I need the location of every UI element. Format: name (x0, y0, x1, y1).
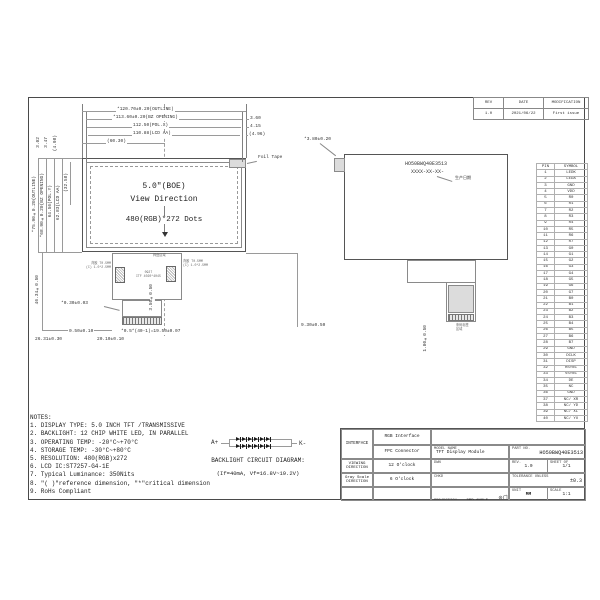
interface-label: INTERFACE (346, 442, 369, 447)
fpc-tail (122, 300, 162, 317)
dim-topleft-3: (4.98) (54, 134, 59, 152)
dimension-line (46, 158, 47, 252)
note-line: 2. BACKLIGHT: 12 CHIP WHITE LED, IN PARA… (30, 430, 265, 438)
view-direction-arrow-icon (162, 232, 168, 237)
resolution-label: 480(RGB)*272 Dots (124, 216, 205, 224)
dim-right-1: 3.60 (249, 117, 262, 122)
gray-scale-label-cell: Gray Scale DIRECTION (341, 473, 373, 487)
interface-value2-cell: FPC Connector (373, 445, 431, 459)
led-icon (254, 444, 258, 448)
dim-label-height: 1.00±0.50 (424, 324, 429, 353)
dwn-cell: DWN (431, 459, 509, 473)
rev-header: REV (474, 98, 504, 109)
fpc-gold-fingers (122, 317, 162, 325)
note-line: 1. DISPLAY TYPE: 5.0 INCH TFT /TRANSMISS… (30, 422, 265, 430)
center-note: 0927 ITF 4020*4045 (136, 271, 161, 279)
pad-area-note: 焊盘区域 (153, 254, 166, 258)
title-block-empty-cell (373, 487, 431, 501)
extension-line (246, 253, 297, 254)
dimension-line (62, 158, 63, 252)
viewing-direction-value-cell: 12 O'clock (373, 459, 431, 473)
extension-line (246, 104, 247, 158)
right-pad-note: 背胶 T0.5MM (C) 1.0*2.5MM (183, 260, 208, 268)
right-pad (166, 266, 176, 282)
dimension-line (297, 253, 298, 327)
dimension-line (42, 252, 43, 330)
extension-line (242, 112, 243, 162)
rev-value: 1.0 (474, 109, 504, 120)
dimension-line (70, 162, 71, 205)
barcode-label-note: 条码标签 区域 (456, 324, 469, 332)
dimension-line (54, 158, 55, 252)
led-icon (248, 437, 252, 441)
led-icon (248, 444, 252, 448)
chkd-label: CHKD (432, 474, 508, 479)
left-pad (115, 267, 125, 283)
rev-cell: REV. 1.0 (510, 460, 547, 472)
led-row (236, 444, 270, 448)
dim-aa-width: 110.88(LCD AA) (132, 132, 172, 137)
gray-scale-value-cell: 6 O'clock (373, 473, 431, 487)
note-line: 9. RoHs Compliant (30, 488, 265, 496)
dim-pol-height: 64.56(POL.Y) (49, 184, 54, 218)
dim-center-offset: (60.30) (106, 140, 127, 145)
barcode-label-note-line2: 区域 (456, 328, 469, 332)
note-line: 4. STORAGE TEMP: -30°C~+80°C (30, 447, 265, 455)
chkd-cell: CHKD (431, 473, 509, 487)
notes-title: NOTES: (30, 414, 265, 422)
dim-offset-2: 20.10±0.10 (96, 338, 125, 343)
led-icon (236, 437, 240, 441)
revision-row: 1.0 2021/06/22 First issue (474, 109, 589, 120)
led-icon (260, 444, 264, 448)
pin-table-body: 1LEDK2LEDA3GND4VDD5R06R17R28R39R410R511R… (537, 170, 588, 422)
part-no-cell: PART NO. HO50BWQ40E3513 (509, 445, 586, 459)
revision-header-row: REV DATE MODIFICATION (474, 98, 589, 109)
rev-sheet-cell: REV. 1.0 SHEET OF 1/1 (509, 459, 586, 473)
third-angle-projection-icon (498, 494, 508, 501)
rev-value: 1.0 (510, 465, 547, 470)
dim-pin-pitch: *0.5*(40-1)=19.50±0.07 (120, 330, 181, 335)
led-icon (266, 437, 270, 441)
revision-table: REV DATE MODIFICATION 1.0 2021/06/22 Fir… (473, 97, 589, 120)
interface-value-2: FPC Connector (384, 450, 419, 455)
dim-outline-height: *75.90±0.20(OUTLINE) (33, 175, 38, 233)
title-block-empty-cell (431, 429, 586, 445)
led-icon (242, 444, 246, 448)
interface-value1-cell: RGB Interface (373, 429, 431, 445)
extension-line (38, 252, 82, 253)
projection-label: PROJECTION (432, 498, 457, 501)
projection-cell: PROJECTION 3RD ANGLE (431, 487, 509, 501)
foil-tape-rect (229, 159, 246, 168)
back-part-number: HO50BWQ40E3513 (404, 162, 448, 168)
gray-scale-value: 6 O'clock (390, 478, 414, 483)
back-date-code: XXXX-XX-XX- (410, 170, 445, 176)
extension-line (82, 104, 83, 158)
title-block: INTERFACE RGB Interface FPC Connector MO… (340, 428, 585, 500)
production-date-label: 生产日期 (454, 177, 472, 181)
dimension-line (38, 158, 39, 252)
dim-outline-width: *120.70±0.20(OUTLINE) (116, 108, 175, 113)
dim-offset-1: 26.31±0.30 (34, 338, 63, 343)
view-direction-label: View Direction (130, 195, 197, 204)
dim-topleft-2: 3.47 (45, 136, 50, 149)
back-fpc-wide (407, 260, 476, 283)
dim-tail-height: 3.50±0.50 (150, 283, 155, 312)
viewing-direction-label-cell: VIEWING DIRECTION (341, 459, 373, 473)
led-row (236, 437, 270, 441)
dim-tab: *3.80±0.20 (303, 138, 332, 143)
modification-value: First issue (544, 109, 589, 120)
interface-label-cell: INTERFACE (341, 429, 373, 459)
dim-topleft-1: 3.02 (37, 136, 42, 149)
back-tape-tab (334, 158, 345, 172)
anode-label: A+ (210, 440, 219, 447)
viewing-direction-label-2: DIRECTION (346, 466, 368, 470)
unit-cell: UNIT MM (510, 488, 547, 500)
dim-center-offset-v: (32.58) (65, 172, 70, 193)
notes-block: NOTES: 1. DISPLAY TYPE: 5.0 INCH TFT /TR… (30, 414, 265, 496)
tolerance-value: ±0.3 (570, 479, 585, 485)
led-icon (260, 437, 264, 441)
right-pad-note-line2: (C) 1.0*2.5MM (183, 264, 208, 268)
backlight-diagram-title: BACKLIGHT CIRCUIT DIAGRAM: (211, 457, 305, 464)
left-pad-note-line2: (C) 1.0*2.5MM (86, 266, 111, 270)
tolerance-cell: TOLERANCE UNLESS SPECIFIED ±0.3 (509, 473, 586, 487)
backlight-spec: (If=40mA, Vf=16.8V~19.2V) (217, 470, 300, 477)
note-line: 8. "( )"reference dimension, "*"critical… (30, 480, 265, 488)
dim-fpc-thickness: *0.30±0.03 (60, 302, 89, 307)
modification-header: MODIFICATION (544, 98, 589, 109)
scale-value: 1:1 (548, 493, 585, 498)
back-gold-fingers (448, 314, 474, 321)
back-barcode-label (448, 285, 474, 313)
cathode-label: K- (298, 441, 307, 448)
dim-fpc-length: 46.34±0.50 (36, 274, 41, 305)
dim-right-3: (4.96) (248, 133, 266, 138)
extension-line (38, 158, 82, 159)
dim-bz-opening-height: *68.90±0.20(BZ OPENING) (41, 172, 46, 238)
dim-pol-width: 112.50(POL.X) (132, 124, 169, 129)
dim-stiffener: 0.50±0.10 (68, 330, 94, 335)
unit-scale-cell: UNIT MM SCALE 1:1 (509, 487, 586, 501)
title-block-empty-cell (341, 487, 373, 501)
dim-aa-height: 62.83(LCD AA) (57, 184, 62, 221)
led-icon (236, 444, 240, 448)
part-no-value: HO50BWQ40E3513 (510, 451, 585, 457)
foil-tape-callout: Foil Tape (257, 156, 283, 161)
model-name-cell: MODEL NAME TFT Display Module (431, 445, 509, 459)
led-icon (242, 437, 246, 441)
sheet-value: 1/1 (548, 465, 585, 470)
dim-gap: 9.30±0.50 (300, 324, 326, 329)
unit-value: MM (510, 493, 547, 498)
drawing-sheet: REV DATE MODIFICATION 1.0 2021/06/22 Fir… (0, 0, 600, 600)
dim-right-2: 4.15 (249, 125, 262, 130)
pin-row: 40NC/ YU (537, 415, 588, 421)
gray-scale-label-2: DIRECTION (346, 480, 368, 484)
date-header: DATE (504, 98, 544, 109)
dim-bz-opening-width: *113.60±0.20(BZ OPENING) (112, 116, 179, 121)
left-pad-note: 背胶 T0.5MM (C) 1.0*2.5MM (86, 262, 111, 270)
center-note-line2: ITF 4020*4045 (136, 275, 161, 279)
sheet-cell: SHEET OF 1/1 (547, 460, 585, 472)
led-icon (266, 444, 270, 448)
dwn-label: DWN (432, 460, 508, 465)
scale-cell: SCALE 1:1 (547, 488, 585, 500)
interface-value-1: RGB Interface (384, 435, 419, 440)
model-name-value: TFT Display Module (432, 451, 508, 456)
display-size-label: 5.0"(BOE) (142, 182, 185, 191)
pin-table: PIN SYMBOL 1LEDK2LEDA3GND4VDD5R06R17R28R… (536, 163, 588, 422)
date-value: 2021/06/22 (504, 109, 544, 120)
led-icon (254, 437, 258, 441)
viewing-direction-value: 12 O'clock (388, 464, 415, 469)
projection-value: 3RD ANGLE (466, 499, 488, 501)
circuit-wire (291, 439, 292, 447)
